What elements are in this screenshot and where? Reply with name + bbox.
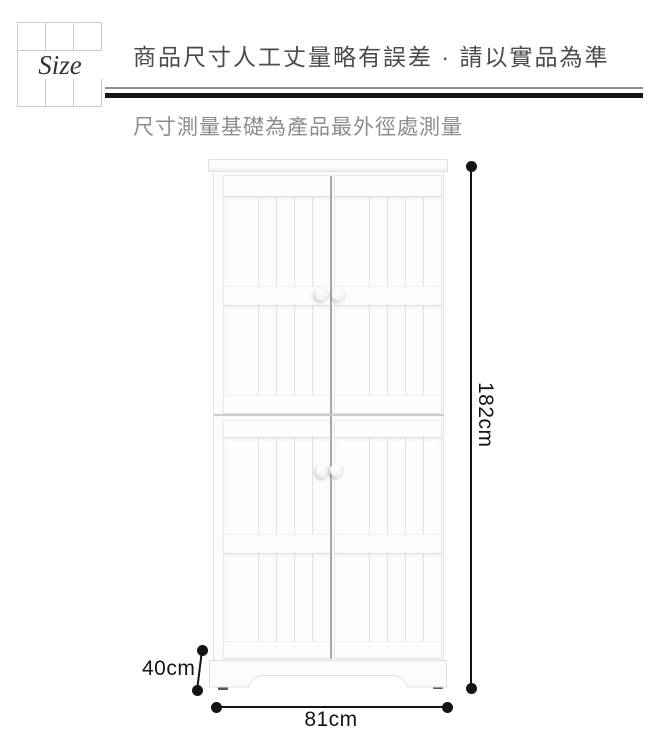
depth-dimension-dot-bottom <box>192 685 203 696</box>
cabinet-door-lower-left <box>223 420 331 659</box>
measurement-note-text: 尺寸測量基礎為產品最外徑處測量 <box>133 115 613 141</box>
depth-dimension-label: 40cm <box>142 657 195 680</box>
cabinet-door-lower-right <box>334 420 442 659</box>
door-rail-bottom <box>335 395 441 413</box>
grid-cell <box>18 79 46 107</box>
section-divider-line <box>214 414 444 416</box>
height-dimension-line <box>470 166 472 688</box>
size-label: Size <box>18 51 102 79</box>
door-knob <box>332 287 346 301</box>
grid-cell <box>46 79 74 107</box>
size-notice-text: 商品尺寸人工丈量略有誤差 · 請以實品為準 <box>133 44 643 70</box>
door-knob <box>330 463 344 477</box>
door-rail-bottom <box>224 395 330 413</box>
height-dimension-dot-top <box>466 161 477 172</box>
door-knob <box>316 464 330 478</box>
door-rail-top <box>224 421 330 438</box>
depth-dimension-dot-top <box>197 645 208 656</box>
door-rail-mid <box>224 534 330 554</box>
door-rail-top <box>335 176 441 197</box>
grid-cell <box>74 79 102 107</box>
door-rail-top <box>224 176 330 197</box>
header-rule-thin <box>105 87 643 89</box>
cabinet-base <box>209 660 447 690</box>
header-rule-thick <box>105 93 643 98</box>
door-rail-mid <box>335 286 441 306</box>
door-knob <box>315 287 329 301</box>
grid-cell <box>18 23 46 51</box>
height-dimension-label: 182cm <box>474 382 497 448</box>
cabinet-cornice <box>208 159 448 172</box>
width-dimension-dot-right <box>442 702 453 713</box>
grid-cell <box>74 23 102 51</box>
door-gap-line <box>330 176 332 659</box>
width-dimension-dot-left <box>211 702 222 713</box>
door-rail-bottom <box>335 641 441 658</box>
cabinet-door-upper-right <box>334 175 442 414</box>
product-size-page: Size 商品尺寸人工丈量略有誤差 · 請以實品為準 尺寸測量基礎為產品最外徑處… <box>0 0 650 734</box>
height-dimension-dot-bottom <box>466 683 477 694</box>
grid-cell <box>46 23 74 51</box>
width-dimension-label: 81cm <box>304 708 357 731</box>
door-rail-top <box>335 421 441 438</box>
door-rail-bottom <box>224 641 330 658</box>
door-rail-mid <box>335 534 441 554</box>
door-rail-mid <box>224 286 330 306</box>
